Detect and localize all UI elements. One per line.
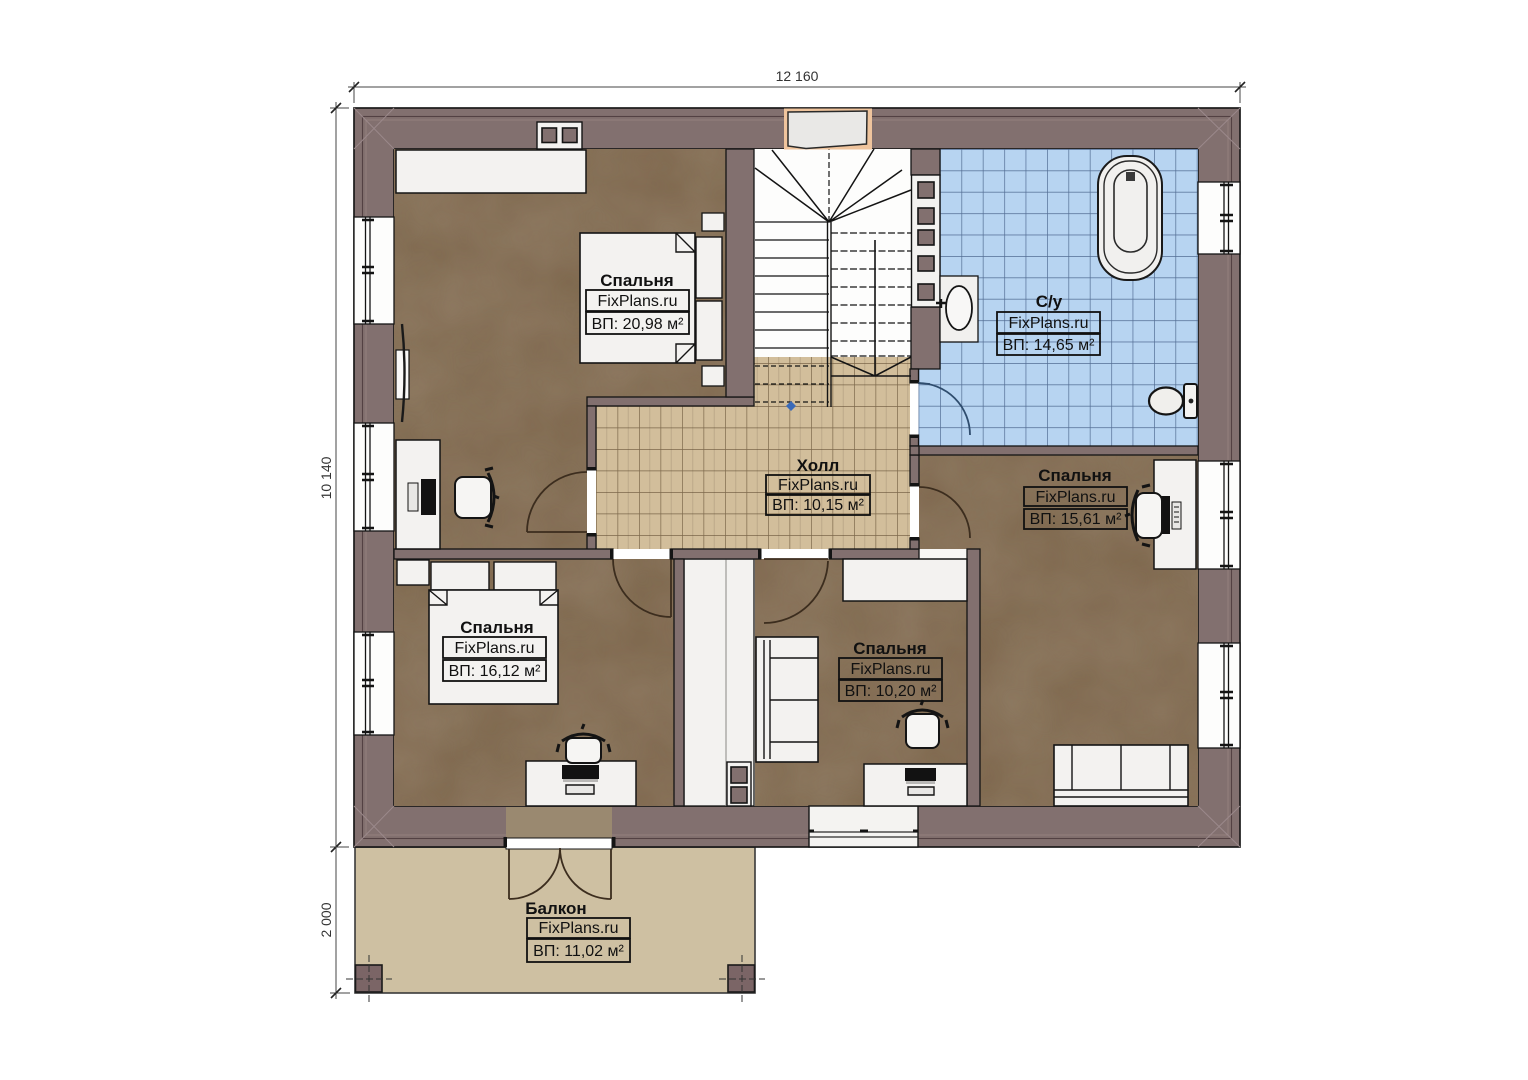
svg-text:12 160: 12 160 [776,68,819,84]
svg-text:FixPlans.ru: FixPlans.ru [538,920,618,937]
svg-text:FixPlans.ru: FixPlans.ru [778,477,858,494]
svg-text:ВП: 20,98 м²: ВП: 20,98 м² [592,316,685,333]
svg-text:10 140: 10 140 [318,456,334,499]
svg-text:ВП: 16,12 м²: ВП: 16,12 м² [449,663,542,680]
svg-text:ВП: 11,02 м²: ВП: 11,02 м² [533,943,624,960]
svg-text:FixPlans.ru: FixPlans.ru [1035,489,1115,506]
svg-text:ВП: 15,61 м²: ВП: 15,61 м² [1030,511,1123,528]
svg-text:FixPlans.ru: FixPlans.ru [1008,315,1088,332]
svg-text:ВП: 14,65 м²: ВП: 14,65 м² [1003,337,1096,354]
svg-text:Спальня: Спальня [1038,466,1111,485]
svg-text:2 000: 2 000 [318,902,334,937]
svg-text:ВП: 10,20 м²: ВП: 10,20 м² [845,683,938,700]
svg-text:Холл: Холл [797,456,840,475]
svg-text:FixPlans.ru: FixPlans.ru [597,293,677,310]
svg-text:Спальня: Спальня [460,618,533,637]
svg-text:С/у: С/у [1036,292,1063,311]
svg-text:FixPlans.ru: FixPlans.ru [454,640,534,657]
svg-text:Спальня: Спальня [600,271,673,290]
svg-text:Балкон: Балкон [525,899,586,918]
svg-text:FixPlans.ru: FixPlans.ru [850,661,930,678]
svg-text:Спальня: Спальня [853,639,926,658]
svg-text:ВП: 10,15 м²: ВП: 10,15 м² [772,497,865,514]
